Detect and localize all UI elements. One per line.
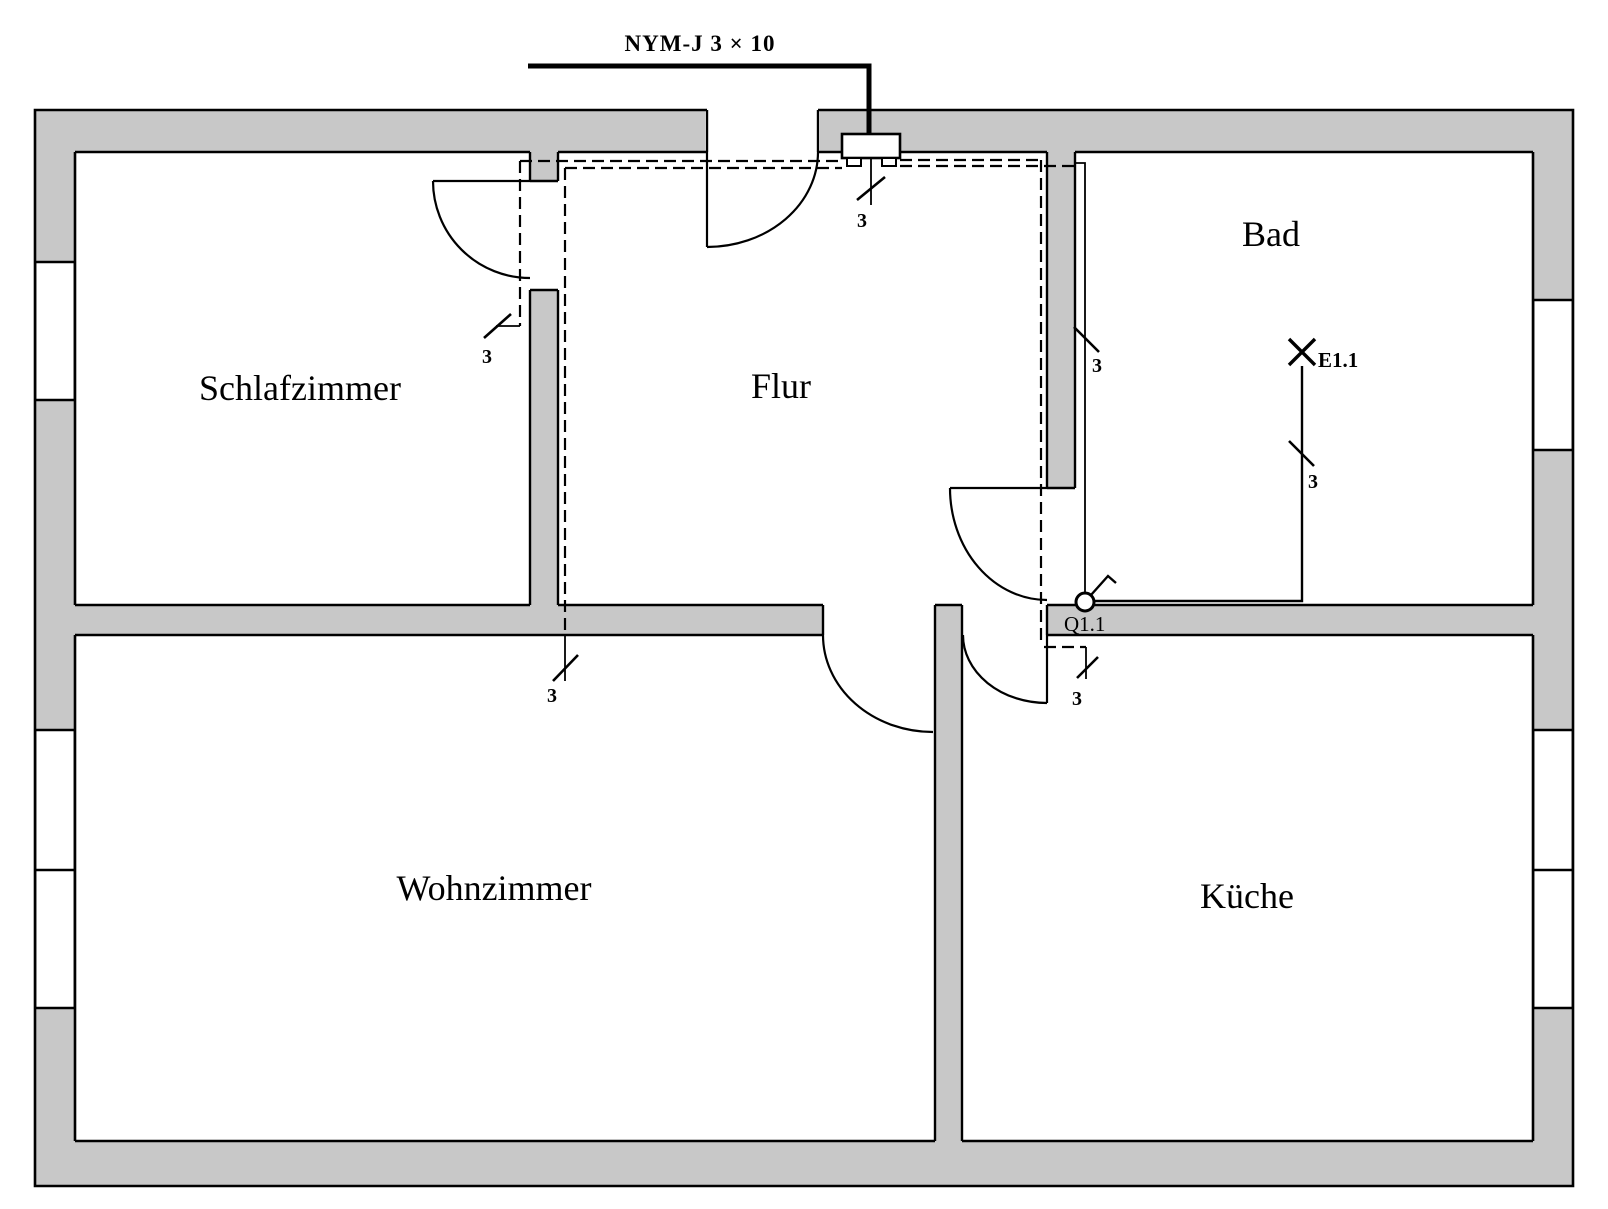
window-right-upper <box>1535 300 1571 450</box>
wall-mid-left <box>75 605 823 635</box>
window-left-lower-2 <box>37 870 73 1008</box>
wall-wohnzimmer-kueche <box>935 605 962 1141</box>
window-left-lower-1 <box>37 730 73 870</box>
wall-flur-bad <box>1047 152 1075 488</box>
junction-box-terminal-right <box>882 158 896 166</box>
conductor-count-kueche: 3 <box>1072 688 1082 710</box>
electrical-layer <box>484 66 1315 681</box>
wall-schlafzimmer-flur <box>530 290 558 605</box>
room-label-schlafzimmer: Schlafzimmer <box>199 368 401 408</box>
cable-spec-label: NYM-J 3 × 10 <box>625 31 776 56</box>
conductor-count-lamp: 3 <box>1308 471 1318 493</box>
wohnzimmer-door-arc <box>823 635 933 732</box>
floor-plan-canvas: NYM-J 3 × 10 Schlafzimmer Flur Bad Wohnz… <box>0 0 1608 1209</box>
kueche-door-arc <box>963 635 1047 703</box>
entrance-door-arc <box>707 152 818 247</box>
window-right-lower-2 <box>1535 870 1571 1008</box>
three-conductor-slash-kueche <box>1077 657 1098 678</box>
room-label-kueche: Küche <box>1200 876 1294 916</box>
window-right-lower-1 <box>1535 730 1571 870</box>
switch-label: Q1.1 <box>1064 612 1105 636</box>
window-left-upper <box>37 262 73 400</box>
bad-door-arc <box>950 488 1047 600</box>
lamp-label: E1.1 <box>1318 348 1358 372</box>
room-label-wohnzimmer: Wohnzimmer <box>396 868 591 908</box>
room-label-bad: Bad <box>1242 214 1300 254</box>
wire-switch-to-lamp <box>1095 366 1302 601</box>
conductor-count-junction: 3 <box>857 210 867 232</box>
inner-wall-outline <box>75 152 1533 1141</box>
entrance-opening <box>705 106 820 154</box>
three-conductor-slash-bad <box>1074 327 1099 352</box>
outer-wall-outline <box>35 110 1573 1186</box>
wire-bad-switch-feed <box>1075 163 1085 592</box>
outer-wall-fill <box>35 110 1573 1186</box>
junction-box-terminal-left <box>847 158 861 166</box>
schlafzimmer-door-arc <box>433 181 530 278</box>
room-label-flur: Flur <box>751 366 811 406</box>
lamp-cross-symbol <box>1289 339 1315 365</box>
conductor-count-schlafzimmer: 3 <box>482 346 492 368</box>
wall-mid-right <box>1047 605 1533 635</box>
conductor-count-wohnzimmer: 3 <box>547 685 557 707</box>
wall-schlafzimmer-flur-stub <box>530 152 558 181</box>
floor-plan-drawing: NYM-J 3 × 10 Schlafzimmer Flur Bad Wohnz… <box>0 0 1608 1209</box>
conductor-count-bad: 3 <box>1092 355 1102 377</box>
